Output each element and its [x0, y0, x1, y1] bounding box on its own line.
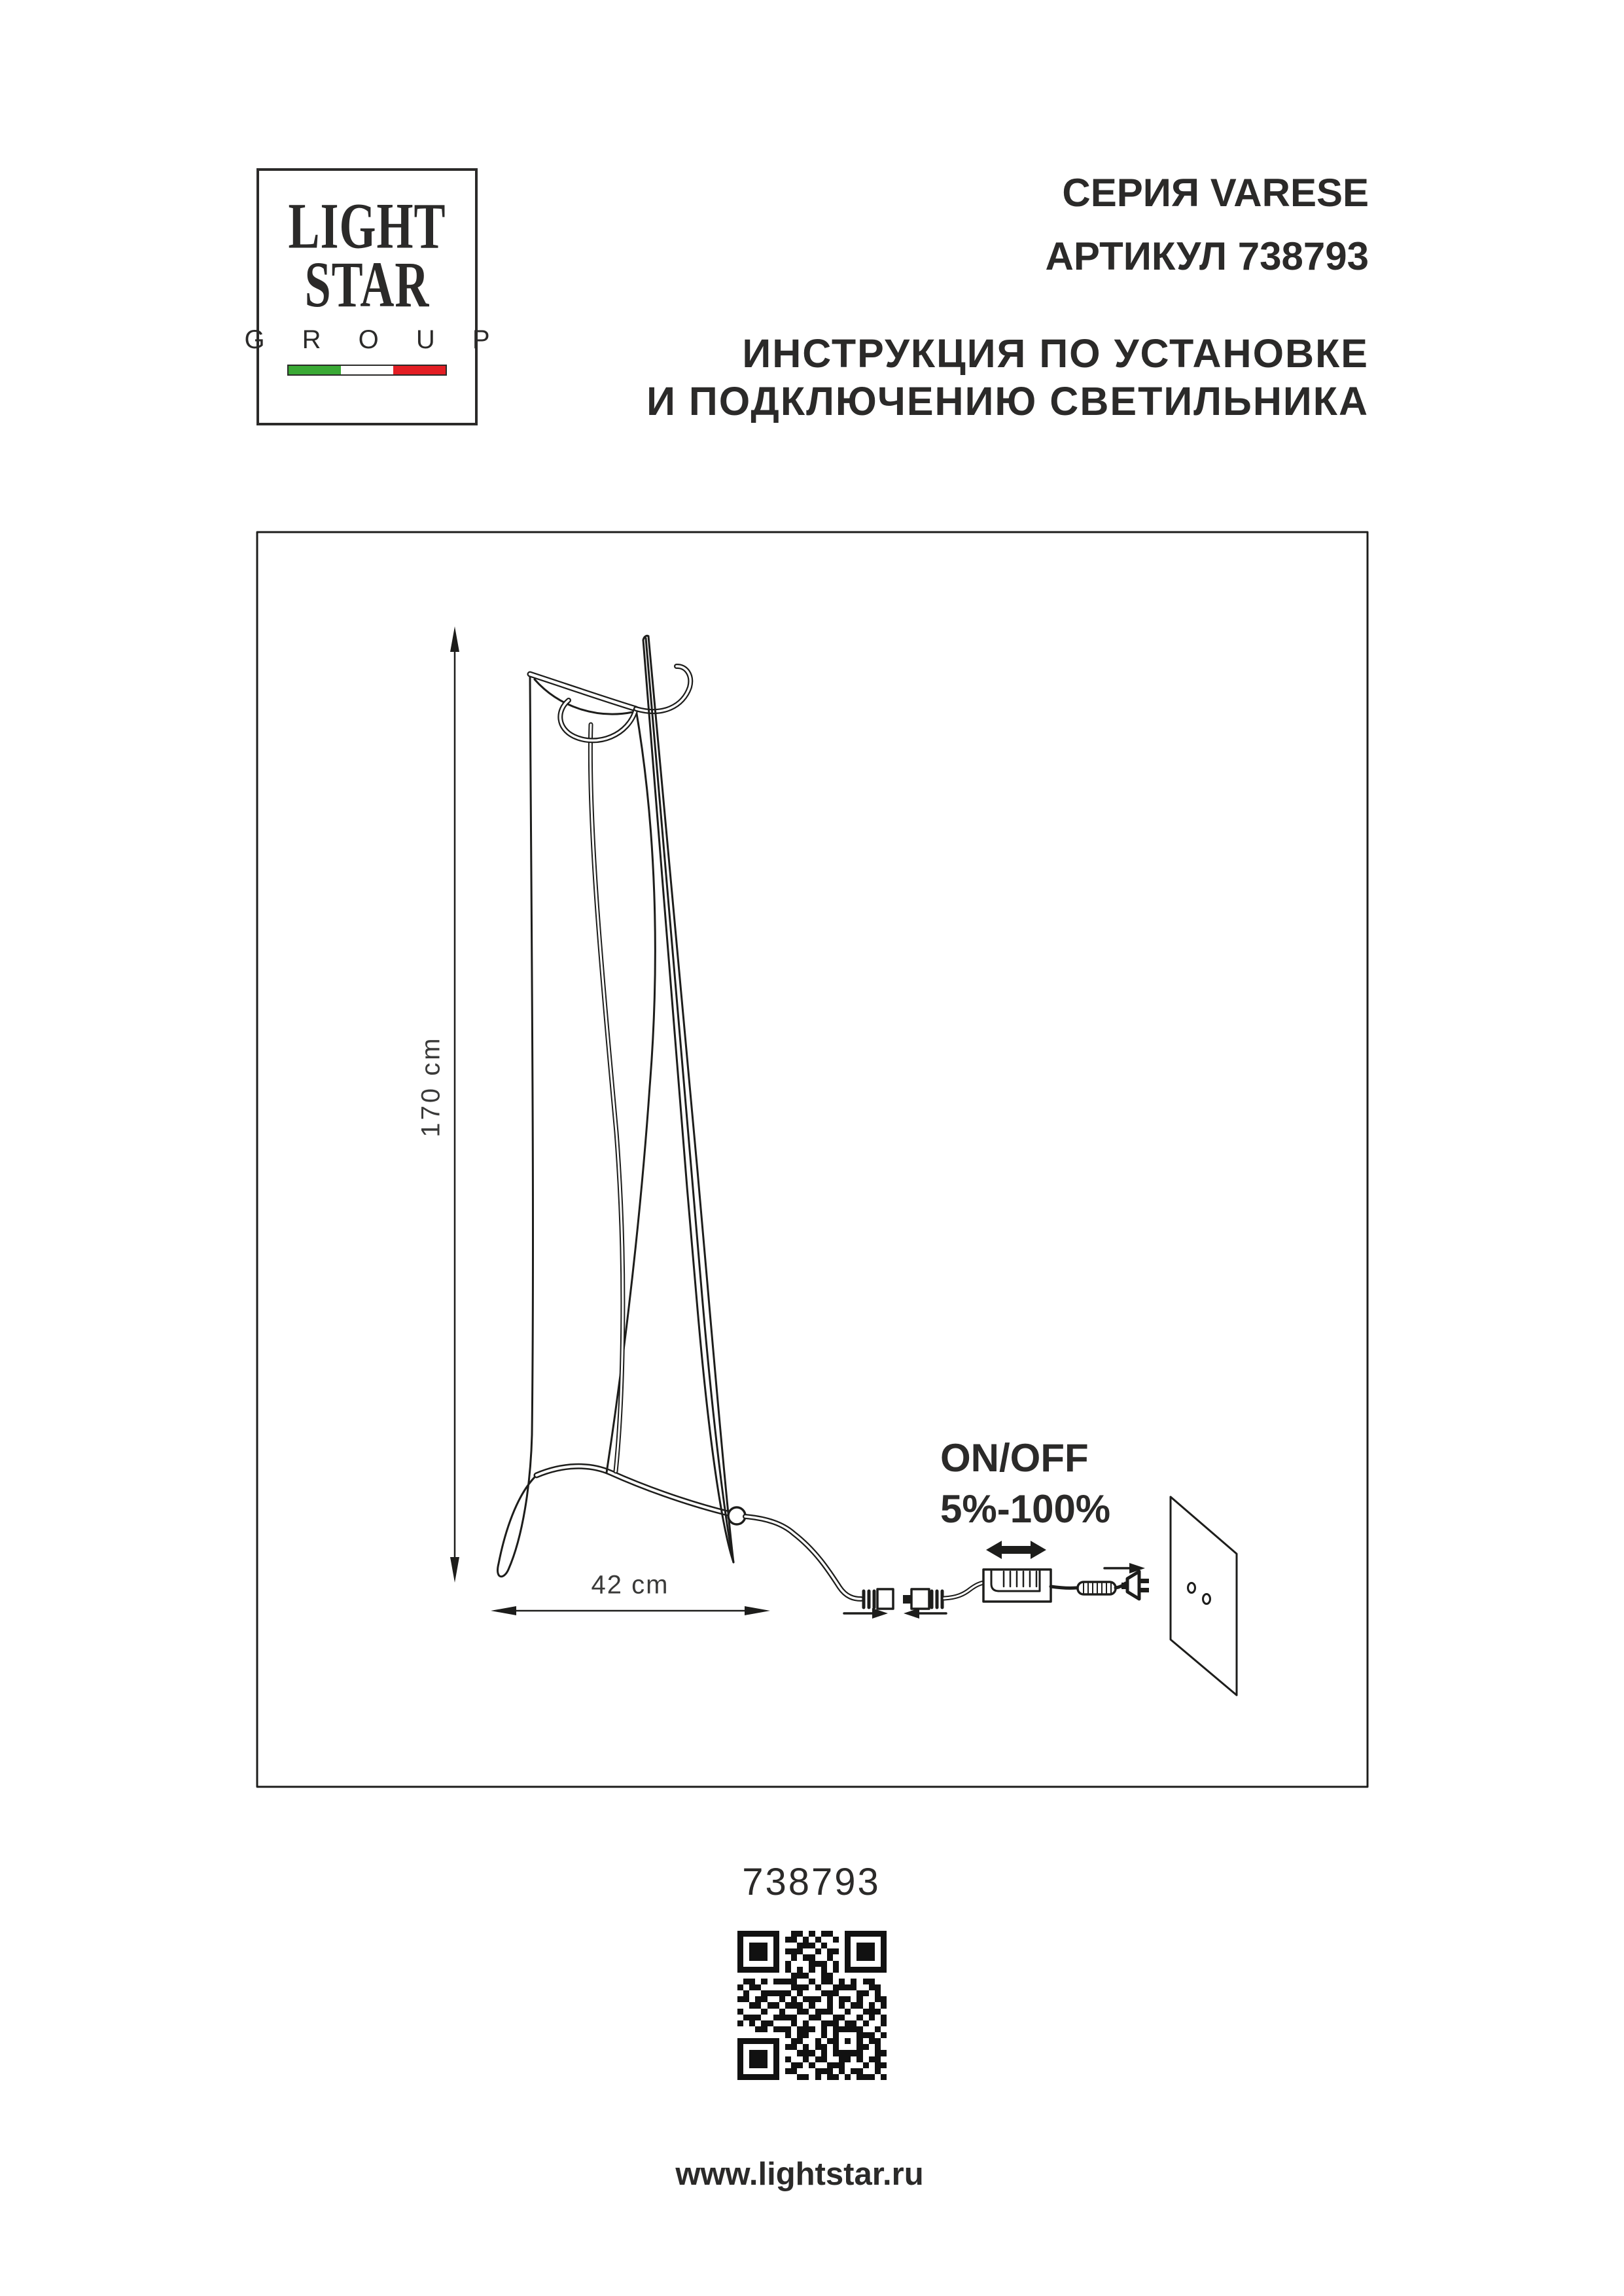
qr-module — [761, 2044, 767, 2050]
qr-module — [851, 1943, 856, 1948]
qr-module — [779, 2020, 785, 2026]
qr-module — [785, 2044, 791, 2050]
qr-module — [856, 1937, 862, 1943]
qr-module — [791, 2044, 797, 2050]
dimmer-control — [983, 1570, 1051, 1602]
qr-module — [809, 1948, 815, 1954]
qr-module — [827, 1990, 833, 1996]
qr-module — [845, 1954, 851, 1960]
qr-module — [797, 2032, 803, 2038]
qr-module — [749, 1961, 755, 1967]
qr-module — [833, 2015, 839, 2020]
qr-module — [779, 2044, 785, 2050]
qr-module — [761, 1954, 767, 1960]
qr-module — [768, 2020, 773, 2026]
qr-module — [863, 1931, 869, 1937]
qr-module — [749, 1990, 755, 1996]
qr-module — [827, 2056, 833, 2062]
qr-module — [851, 2020, 856, 2026]
qr-module — [755, 2015, 761, 2020]
qr-module — [779, 2015, 785, 2020]
qr-module — [743, 1937, 749, 1943]
qr-module — [863, 1973, 869, 1979]
qr-module — [761, 1943, 767, 1948]
qr-module — [881, 1973, 887, 1979]
qr-module — [779, 2068, 785, 2074]
qr-module — [791, 1954, 797, 1960]
qr-module — [821, 2026, 827, 2032]
qr-module — [856, 2032, 862, 2038]
qr-module — [768, 1931, 773, 1937]
width-dimension-label: 42 cm — [591, 1571, 669, 1600]
qr-module — [737, 2026, 743, 2032]
qr-module — [803, 1973, 809, 1979]
qr-module — [755, 2009, 761, 2015]
qr-module — [821, 1973, 827, 1979]
qr-module — [779, 1979, 785, 1984]
mains-cord — [1051, 1582, 1125, 1594]
qr-module — [749, 2038, 755, 2044]
qr-module — [768, 1937, 773, 1943]
qr-module — [743, 2050, 749, 2056]
qr-module — [768, 2009, 773, 2015]
qr-module — [827, 2074, 833, 2080]
qr-module — [749, 1984, 755, 1990]
qr-module — [773, 1937, 779, 1943]
qr-module — [743, 1961, 749, 1967]
qr-module — [815, 2050, 821, 2056]
qr-module — [815, 2026, 821, 2032]
qr-module — [881, 2056, 887, 2062]
qr-module — [797, 1937, 803, 1943]
qr-module — [743, 2062, 749, 2068]
qr-module — [881, 2050, 887, 2056]
qr-module — [761, 2032, 767, 2038]
qr-module — [869, 1973, 875, 1979]
qr-module — [749, 2015, 755, 2020]
qr-module — [863, 2009, 869, 2015]
qr-module — [815, 1973, 821, 1979]
qr-module — [803, 1948, 809, 1954]
qr-module — [845, 2044, 851, 2050]
qr-module — [827, 2062, 833, 2068]
qr-module — [875, 1943, 881, 1948]
qr-module — [809, 2068, 815, 2074]
qr-module — [779, 2009, 785, 2015]
qr-module — [856, 2009, 862, 2015]
qr-module — [773, 1943, 779, 1948]
qr-module — [773, 1967, 779, 1973]
qr-module — [827, 2026, 833, 2032]
qr-module — [845, 1984, 851, 1990]
qr-module — [743, 1973, 749, 1979]
qr-module — [815, 2002, 821, 2008]
qr-module — [856, 1984, 862, 1990]
qr-module — [737, 1954, 743, 1960]
qr-module — [833, 2026, 839, 2032]
qr-module — [856, 1967, 862, 1973]
qr-module — [839, 1984, 845, 1990]
qr-module — [779, 1948, 785, 1954]
qr-module — [851, 2074, 856, 2080]
qr-module — [851, 2062, 856, 2068]
qr-module — [785, 2062, 791, 2068]
qr-module — [791, 2038, 797, 2044]
qr-module — [881, 2009, 887, 2015]
qr-module — [809, 1931, 815, 1937]
qr-module — [791, 1961, 797, 1967]
qr-module — [869, 1961, 875, 1967]
qr-module — [809, 1990, 815, 1996]
qr-module — [773, 2020, 779, 2026]
qr-module — [833, 2038, 839, 2044]
qr-module — [839, 1996, 845, 2002]
qr-module — [737, 1996, 743, 2002]
qr-module — [768, 1979, 773, 1984]
qr-module — [869, 1937, 875, 1943]
qr-module — [791, 2074, 797, 2080]
qr-module — [833, 2074, 839, 2080]
qr-module — [863, 2015, 869, 2020]
qr-module — [797, 2056, 803, 2062]
qr-module — [821, 1948, 827, 1954]
qr-module — [839, 1954, 845, 1960]
qr-module — [785, 1931, 791, 1937]
qr-module — [821, 1943, 827, 1948]
qr-module — [755, 2056, 761, 2062]
qr-module — [737, 2038, 743, 2044]
qr-module — [743, 1931, 749, 1937]
qr-module — [749, 1996, 755, 2002]
qr-module — [821, 1990, 827, 1996]
qr-module — [839, 1979, 845, 1984]
qr-module — [791, 1990, 797, 1996]
qr-module — [845, 1948, 851, 1954]
qr-module — [768, 2026, 773, 2032]
qr-module — [856, 2015, 862, 2020]
qr-module — [856, 1943, 862, 1948]
qr-module — [809, 1943, 815, 1948]
qr-module — [755, 1979, 761, 1984]
qr-module — [809, 1961, 815, 1967]
qr-module — [856, 1979, 862, 1984]
qr-module — [737, 2002, 743, 2008]
qr-module — [821, 2068, 827, 2074]
qr-module — [749, 1943, 755, 1948]
qr-module — [761, 1990, 767, 1996]
qr-module — [869, 2062, 875, 2068]
qr-module — [869, 1979, 875, 1984]
qr-module — [869, 2068, 875, 2074]
qr-module — [803, 1954, 809, 1960]
qr-module — [881, 1943, 887, 1948]
qr-module — [785, 2009, 791, 2015]
qr-module — [839, 1961, 845, 1967]
qr-module — [797, 1943, 803, 1948]
qr-module — [785, 2068, 791, 2074]
qr-module — [749, 1954, 755, 1960]
qr-module — [851, 2015, 856, 2020]
qr-module — [833, 2002, 839, 2008]
qr-module — [827, 1984, 833, 1990]
qr-module — [845, 2038, 851, 2044]
qr-module — [761, 1937, 767, 1943]
qr-module — [779, 2050, 785, 2056]
qr-module — [815, 1937, 821, 1943]
qr-module — [803, 2009, 809, 2015]
qr-module — [737, 1937, 743, 1943]
qr-module — [779, 2062, 785, 2068]
qr-module — [809, 2026, 815, 2032]
qr-module — [863, 2020, 869, 2026]
qr-module — [827, 1961, 833, 1967]
qr-module — [768, 1954, 773, 1960]
qr-module — [821, 1967, 827, 1973]
qr-module — [815, 2009, 821, 2015]
qr-module — [869, 2032, 875, 2038]
qr-module — [743, 2032, 749, 2038]
qr-module — [797, 1931, 803, 1937]
instruction-sheet: LIGHT STAR G R O U P СЕРИЯ VARESE АРТИКУ… — [0, 0, 1624, 2296]
qr-module — [881, 2026, 887, 2032]
qr-module — [797, 1984, 803, 1990]
qr-module — [755, 2002, 761, 2008]
qr-module — [881, 1931, 887, 1937]
qr-module — [761, 2002, 767, 2008]
qr-module — [827, 2044, 833, 2050]
qr-module — [863, 2074, 869, 2080]
qr-module — [833, 1990, 839, 1996]
qr-module — [851, 2026, 856, 2032]
qr-module — [803, 2056, 809, 2062]
qr-module — [845, 1996, 851, 2002]
qr-module — [737, 2074, 743, 2080]
qr-module — [839, 2015, 845, 2020]
qr-module — [797, 2026, 803, 2032]
qr-module — [797, 2002, 803, 2008]
qr-module — [743, 1967, 749, 1973]
qr-module — [856, 1931, 862, 1937]
qr-module — [785, 1967, 791, 1973]
qr-module — [791, 2026, 797, 2032]
qr-module — [791, 1984, 797, 1990]
qr-module — [749, 2074, 755, 2080]
qr-module — [827, 1937, 833, 1943]
qr-module — [821, 2009, 827, 2015]
qr-module — [761, 2068, 767, 2074]
qr-module — [797, 2050, 803, 2056]
qr-module — [803, 2050, 809, 2056]
qr-module — [755, 1973, 761, 1979]
qr-module — [809, 2020, 815, 2026]
qr-module — [773, 1954, 779, 1960]
qr-module — [839, 1948, 845, 1954]
qr-module — [743, 1948, 749, 1954]
qr-module — [839, 2074, 845, 2080]
qr-module — [791, 2056, 797, 2062]
qr-module — [785, 2002, 791, 2008]
qr-module — [768, 2068, 773, 2074]
qr-module — [875, 2062, 881, 2068]
qr-module — [881, 2002, 887, 2008]
qr-module — [749, 2020, 755, 2026]
qr-module — [737, 1990, 743, 1996]
qr-module — [833, 2032, 839, 2038]
qr-module — [856, 2068, 862, 2074]
qr-module — [863, 2068, 869, 2074]
qr-module — [839, 2062, 845, 2068]
qr-module — [737, 1984, 743, 1990]
qr-module — [779, 2056, 785, 2062]
qr-module — [869, 2015, 875, 2020]
qr-module — [755, 2026, 761, 2032]
qr-module — [803, 1943, 809, 1948]
qr-module — [856, 1954, 862, 1960]
qr-module — [755, 2050, 761, 2056]
qr-module — [863, 2050, 869, 2056]
qr-module — [827, 1948, 833, 1954]
qr-module — [839, 1931, 845, 1937]
qr-module — [815, 1979, 821, 1984]
qr-module — [773, 2002, 779, 2008]
qr-module — [869, 1990, 875, 1996]
qr-module — [863, 1937, 869, 1943]
qr-module — [881, 1937, 887, 1943]
qr-module — [755, 2062, 761, 2068]
qr-module — [743, 2026, 749, 2032]
qr-module — [768, 1990, 773, 1996]
qr-module — [737, 1931, 743, 1937]
qr-module — [785, 1984, 791, 1990]
qr-module — [839, 1937, 845, 1943]
qr-module — [737, 1967, 743, 1973]
qr-module — [809, 1937, 815, 1943]
qr-module — [845, 2002, 851, 2008]
qr-module — [881, 1990, 887, 1996]
qr-module — [743, 1990, 749, 1996]
qr-module — [761, 1973, 767, 1979]
qr-module — [833, 1931, 839, 1937]
qr-module — [809, 2009, 815, 2015]
qr-module — [768, 2032, 773, 2038]
qr-module — [785, 2032, 791, 2038]
qr-module — [821, 1961, 827, 1967]
qr-module — [815, 2044, 821, 2050]
cable-exit-ball — [728, 1507, 745, 1524]
qr-module — [809, 2050, 815, 2056]
qr-module — [869, 1948, 875, 1954]
qr-module — [827, 1979, 833, 1984]
qr-module — [755, 1990, 761, 1996]
qr-module — [809, 2002, 815, 2008]
qr-module — [773, 2050, 779, 2056]
qr-module — [768, 1967, 773, 1973]
qr-module — [881, 2074, 887, 2080]
qr-module — [827, 2032, 833, 2038]
qr-module — [827, 2015, 833, 2020]
qr-module — [761, 2062, 767, 2068]
qr-module — [821, 2074, 827, 2080]
qr-module — [749, 2002, 755, 2008]
qr-module — [827, 2009, 833, 2015]
qr-module — [797, 1948, 803, 1954]
qr-module — [768, 1948, 773, 1954]
qr-module — [761, 2056, 767, 2062]
qr-module — [821, 2002, 827, 2008]
qr-module — [875, 2015, 881, 2020]
qr-module — [863, 1967, 869, 1973]
qr-module — [737, 1979, 743, 1984]
qr-module — [863, 1996, 869, 2002]
qr-module — [755, 2074, 761, 2080]
qr-module — [809, 2038, 815, 2044]
qr-module — [815, 1984, 821, 1990]
qr-module — [743, 1979, 749, 1984]
qr-module — [755, 1943, 761, 1948]
qr-module — [881, 1954, 887, 1960]
qr-module — [749, 1948, 755, 1954]
qr-module — [803, 1979, 809, 1984]
qr-module — [737, 2032, 743, 2038]
qr-module — [773, 1979, 779, 1984]
qr-module — [737, 2015, 743, 2020]
qr-module — [803, 2032, 809, 2038]
qr-module — [743, 1996, 749, 2002]
qr-module — [791, 1979, 797, 1984]
qr-module — [737, 2062, 743, 2068]
qr-module — [809, 1967, 815, 1973]
qr-module — [875, 2068, 881, 2074]
qr-module — [809, 2015, 815, 2020]
qr-module — [845, 2026, 851, 2032]
qr-module — [815, 2038, 821, 2044]
qr-module — [791, 2068, 797, 2074]
floor-lamp-drawing — [498, 636, 745, 1576]
qr-module — [773, 1990, 779, 1996]
qr-module — [737, 2044, 743, 2050]
qr-module — [869, 1931, 875, 1937]
qr-module — [875, 2002, 881, 2008]
dimmer-onoff-label: ON/OFF — [940, 1435, 1089, 1480]
qr-module — [821, 1954, 827, 1960]
qr-module — [809, 1973, 815, 1979]
qr-module — [779, 1937, 785, 1943]
qr-module — [827, 2020, 833, 2026]
qr-module — [869, 1954, 875, 1960]
qr-module — [755, 2032, 761, 2038]
qr-module — [785, 2020, 791, 2026]
qr-module — [761, 2015, 767, 2020]
qr-module — [815, 1943, 821, 1948]
qr-module — [827, 1996, 833, 2002]
qr-module — [785, 2038, 791, 2044]
qr-module — [791, 1996, 797, 2002]
qr-module — [779, 1931, 785, 1937]
qr-module — [881, 1996, 887, 2002]
qr-module — [755, 2038, 761, 2044]
qr-module — [809, 1984, 815, 1990]
qr-module — [773, 1973, 779, 1979]
qr-module — [869, 2026, 875, 2032]
qr-module — [768, 2062, 773, 2068]
qr-module — [845, 2056, 851, 2062]
qr-module — [815, 2032, 821, 2038]
qr-module — [785, 1979, 791, 1984]
qr-module — [797, 1961, 803, 1967]
connector-male — [864, 1589, 893, 1609]
qr-module — [833, 1973, 839, 1979]
qr-module — [773, 2015, 779, 2020]
